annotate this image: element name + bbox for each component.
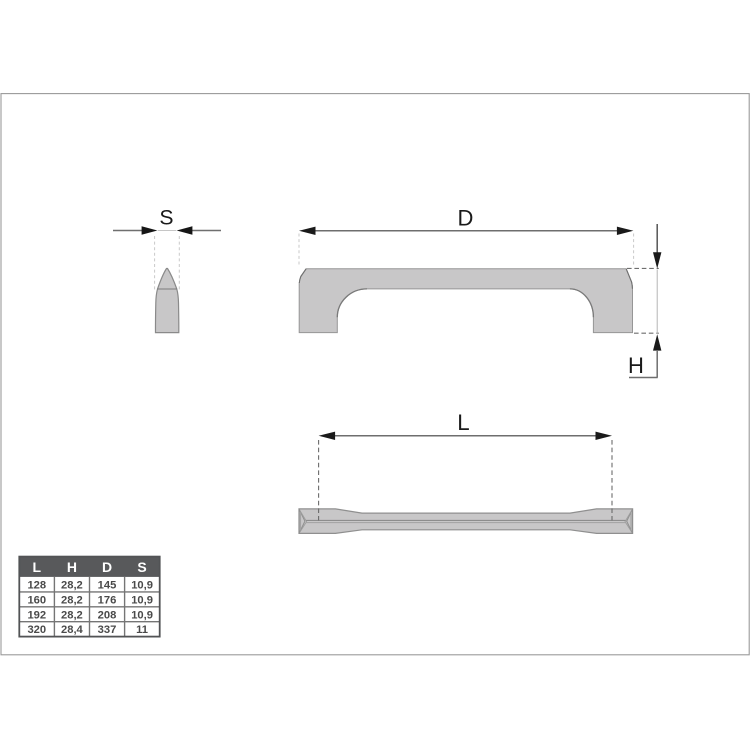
- svg-text:10,9: 10,9: [131, 580, 153, 592]
- svg-text:H: H: [628, 353, 644, 378]
- svg-text:H: H: [67, 559, 77, 575]
- svg-text:D: D: [458, 205, 474, 230]
- svg-text:208: 208: [98, 609, 117, 621]
- svg-text:320: 320: [27, 624, 46, 636]
- svg-text:28,2: 28,2: [61, 594, 83, 606]
- svg-text:28,2: 28,2: [61, 609, 83, 621]
- svg-text:L: L: [457, 410, 469, 435]
- svg-text:28,4: 28,4: [61, 624, 84, 636]
- svg-text:10,9: 10,9: [131, 609, 153, 621]
- svg-text:176: 176: [98, 594, 117, 606]
- svg-text:S: S: [159, 207, 173, 230]
- svg-text:145: 145: [98, 580, 117, 592]
- svg-text:192: 192: [27, 609, 46, 621]
- svg-text:337: 337: [98, 624, 117, 636]
- svg-text:D: D: [102, 559, 112, 575]
- svg-text:S: S: [137, 559, 146, 575]
- svg-text:L: L: [33, 559, 42, 575]
- svg-text:28,2: 28,2: [61, 580, 83, 592]
- svg-text:160: 160: [27, 594, 46, 606]
- svg-text:128: 128: [27, 580, 46, 592]
- svg-text:11: 11: [136, 624, 148, 636]
- svg-text:10,9: 10,9: [131, 594, 153, 606]
